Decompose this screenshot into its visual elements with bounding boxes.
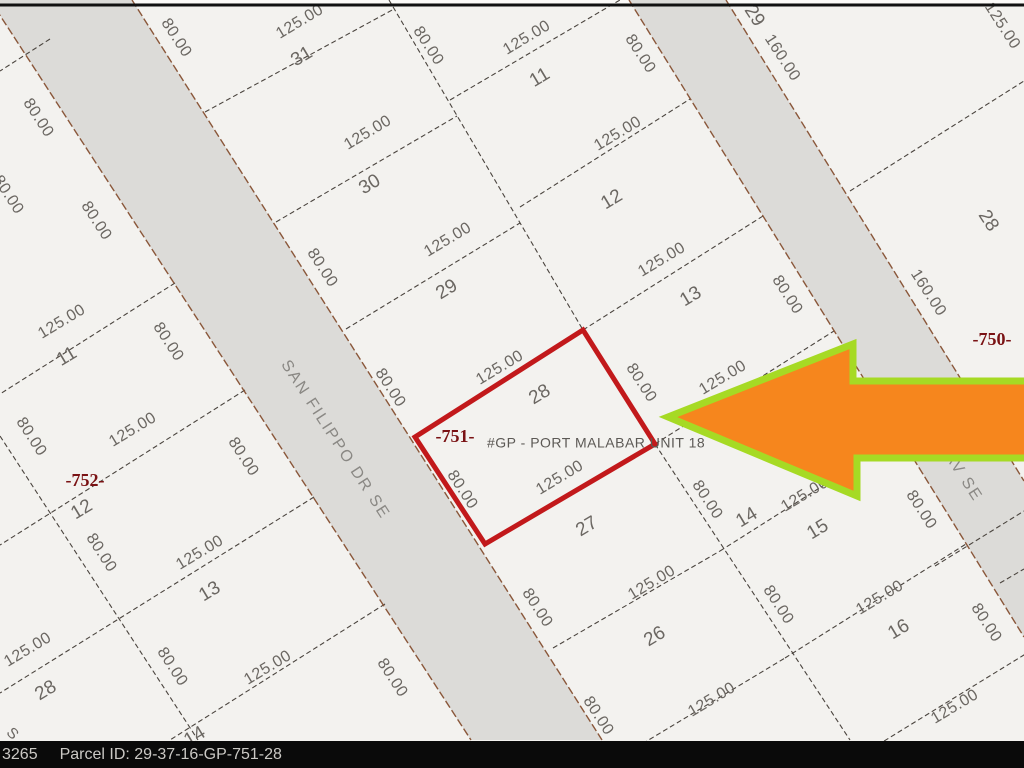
- block-number: -752-: [66, 470, 105, 490]
- block-number: -750-: [973, 329, 1012, 349]
- record-id: 3265: [2, 746, 38, 764]
- block-number: -751-: [436, 426, 475, 446]
- map-top-strip: [0, 0, 1024, 3]
- plat-map: 80.0080.0080.0080.00125.00125.0080.0080.…: [0, 0, 1024, 741]
- status-bar: 3265 Parcel ID: 29-37-16-GP-751-28: [0, 741, 1024, 768]
- parcel-id-label: Parcel ID: 29-37-16-GP-751-28: [60, 746, 282, 764]
- map-viewer: 80.0080.0080.0080.00125.00125.0080.0080.…: [0, 0, 1024, 768]
- parcel-annotation: #GP - PORT MALABAR UNIT 18: [487, 435, 705, 451]
